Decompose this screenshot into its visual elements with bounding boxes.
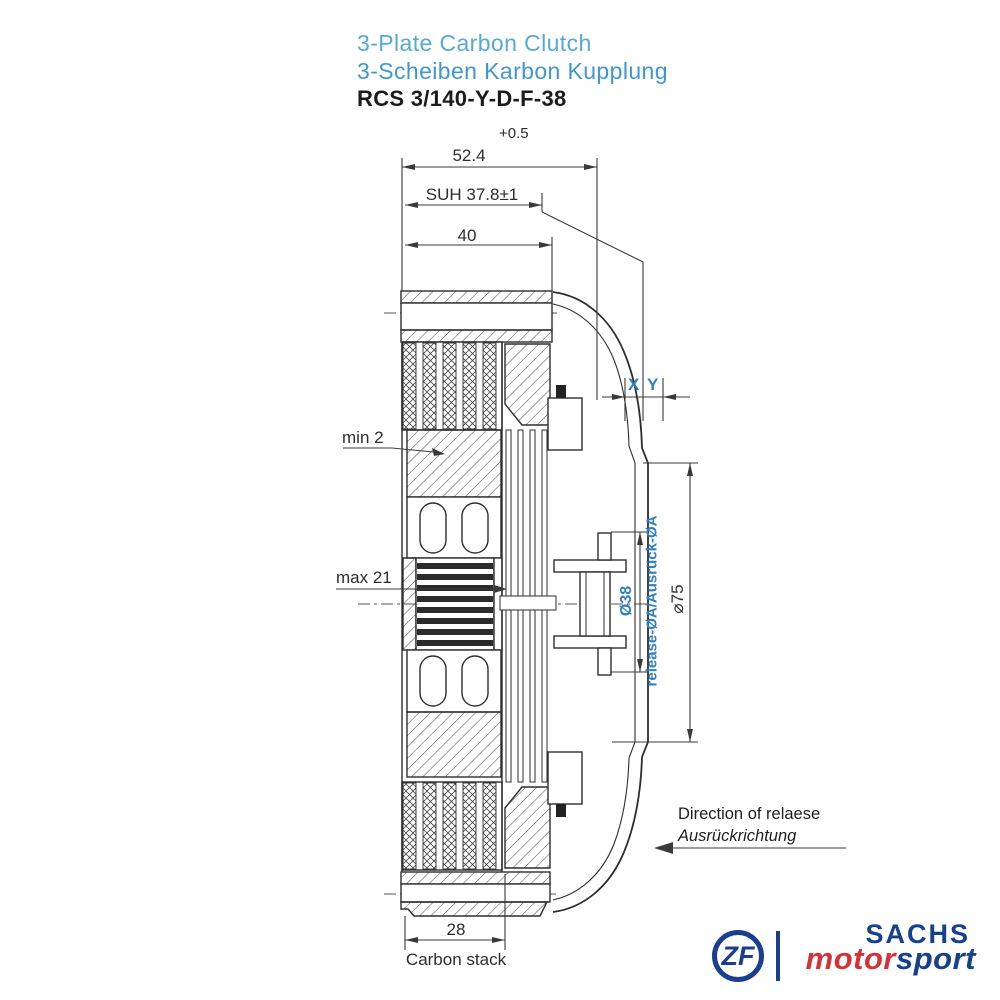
cover-rim-top — [505, 344, 550, 425]
hub-width-dimension: 40 — [458, 226, 477, 246]
motorsport-wordmark: motorsport — [806, 941, 976, 977]
outer-band-top — [401, 291, 552, 342]
overall-width-dimension: 52.4 — [452, 146, 485, 166]
x-dimension-label: X — [628, 375, 639, 395]
clutch-body — [401, 291, 648, 916]
motorsport-word-sport: sport — [896, 941, 976, 976]
carbon-stack-top — [402, 342, 502, 430]
logo-divider — [776, 931, 780, 981]
zf-logo: ZF — [712, 930, 764, 982]
product-drawing-page: 3-Plate Carbon Clutch 3-Scheiben Karbon … — [0, 0, 1000, 1000]
outer-diameter-label: ⌀75 — [668, 584, 688, 613]
y-dimension-label: Y — [647, 375, 658, 395]
product-title-de: 3-Scheiben Karbon Kupplung — [357, 58, 668, 85]
suh-dimension: SUH 37.8±1 — [426, 185, 519, 205]
clutch-cross-section-drawing — [0, 0, 1000, 1000]
diaphragm-spring-plates — [500, 430, 556, 782]
tolerance-label: +0.5 — [499, 125, 529, 142]
carbon-stack-width-dimension: 28 — [447, 920, 466, 940]
max-wear-label: max 21 — [336, 568, 392, 588]
carbon-stack-bottom — [402, 782, 502, 870]
release-direction-de: Ausrückrichtung — [678, 827, 796, 846]
carbon-stack-label: Carbon stack — [406, 950, 506, 970]
zf-logo-text: ZF — [722, 941, 755, 972]
outer-band-bottom — [401, 872, 550, 916]
motorsport-word-motor: motor — [806, 941, 896, 976]
model-number: RCS 3/140-Y-D-F-38 — [357, 86, 567, 112]
product-title-en: 3-Plate Carbon Clutch — [357, 30, 592, 57]
release-diameter-label: release-ØA/Ausrück-ØA — [644, 516, 661, 687]
release-bearing — [548, 385, 626, 817]
min-wear-label: min 2 — [342, 428, 384, 448]
cover-rim-bottom — [505, 787, 550, 868]
release-direction-en: Direction of relaese — [678, 805, 820, 824]
release-diameter-value: Ø38 — [618, 586, 636, 616]
